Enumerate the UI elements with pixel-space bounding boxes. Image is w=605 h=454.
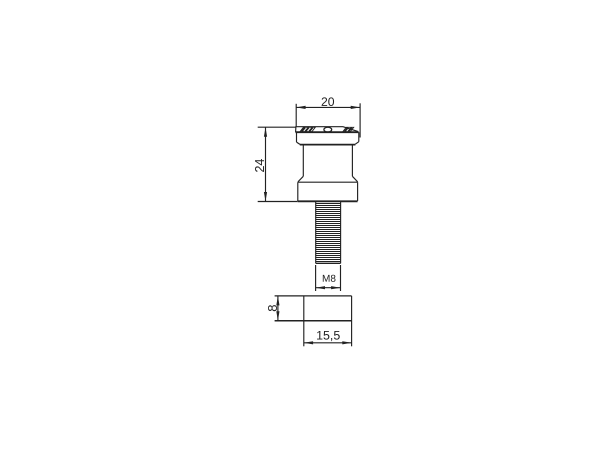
svg-text:8: 8 xyxy=(265,304,280,311)
svg-text:20: 20 xyxy=(321,95,335,109)
svg-text:M8: M8 xyxy=(322,274,336,285)
svg-text:24: 24 xyxy=(253,159,267,173)
svg-text:15,5: 15,5 xyxy=(316,328,340,342)
